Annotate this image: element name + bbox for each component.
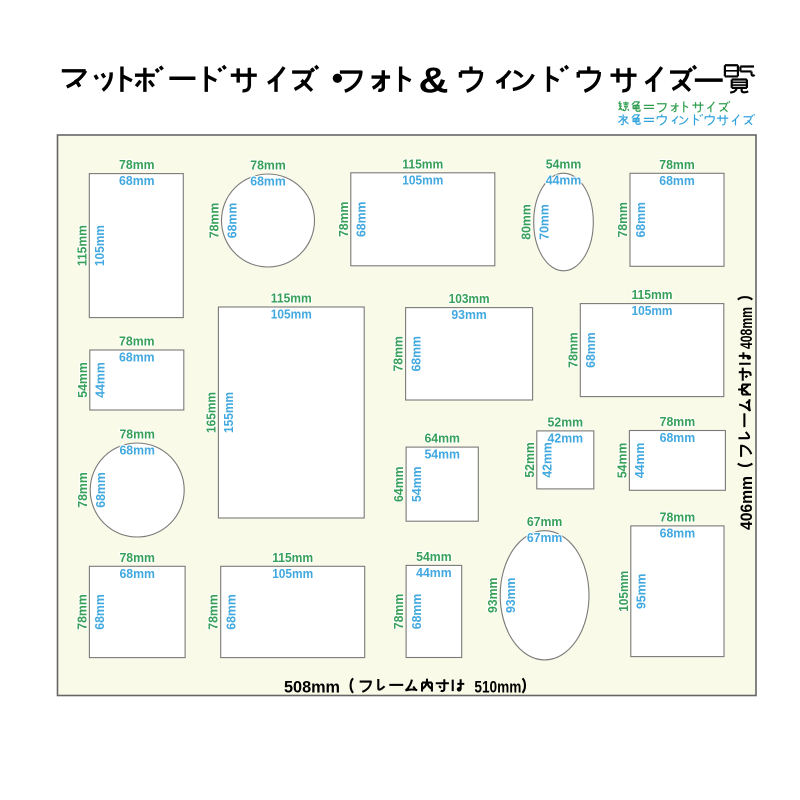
svg-text:105mm: 105mm <box>271 308 312 322</box>
svg-text:78mm: 78mm <box>119 158 155 172</box>
svg-text:68mm: 68mm <box>93 594 107 630</box>
svg-text:78mm: 78mm <box>119 335 155 349</box>
svg-text:93mm: 93mm <box>486 578 500 614</box>
svg-text:115mm: 115mm <box>75 225 89 266</box>
svg-text:408mm: 408mm <box>737 307 756 349</box>
svg-text:78mm: 78mm <box>207 594 221 630</box>
svg-text:93mm: 93mm <box>504 578 518 614</box>
svg-text:78mm: 78mm <box>660 415 696 429</box>
svg-text:103mm: 103mm <box>449 292 490 306</box>
svg-text:78mm: 78mm <box>659 158 695 172</box>
svg-text:80mm: 80mm <box>520 204 534 240</box>
svg-text:78mm: 78mm <box>337 202 351 238</box>
svg-text:115mm: 115mm <box>272 551 313 565</box>
svg-text:115mm: 115mm <box>402 157 443 171</box>
svg-text:105mm: 105mm <box>93 225 107 266</box>
svg-text:510mm: 510mm <box>474 678 521 697</box>
svg-text:68mm: 68mm <box>225 203 239 239</box>
svg-text:68mm: 68mm <box>584 332 598 368</box>
svg-text:68mm: 68mm <box>225 594 239 630</box>
svg-text:68mm: 68mm <box>119 174 155 188</box>
svg-text:78mm: 78mm <box>208 203 222 239</box>
svg-text:67mm: 67mm <box>527 531 563 545</box>
svg-text:68mm: 68mm <box>660 431 696 445</box>
svg-text:78mm: 78mm <box>392 594 406 630</box>
svg-text:64mm: 64mm <box>424 432 460 446</box>
svg-text:406mm: 406mm <box>737 476 756 530</box>
svg-text:68mm: 68mm <box>119 444 155 458</box>
svg-text:52mm: 52mm <box>548 415 584 429</box>
svg-text:93mm: 93mm <box>451 308 487 322</box>
svg-text:115mm: 115mm <box>632 288 673 302</box>
svg-text:78mm: 78mm <box>660 510 696 524</box>
svg-text:70mm: 70mm <box>538 204 552 240</box>
svg-text:68mm: 68mm <box>119 351 155 365</box>
svg-text:68mm: 68mm <box>119 567 155 581</box>
svg-text:68mm: 68mm <box>409 336 423 372</box>
svg-text:44mm: 44mm <box>633 443 647 479</box>
svg-text:44mm: 44mm <box>546 174 582 188</box>
svg-text:78mm: 78mm <box>616 202 630 238</box>
svg-text:54mm: 54mm <box>410 466 424 502</box>
svg-text:78mm: 78mm <box>566 332 580 368</box>
svg-text:68mm: 68mm <box>659 174 695 188</box>
svg-text:95mm: 95mm <box>635 574 649 610</box>
svg-text:105mm: 105mm <box>402 173 443 187</box>
svg-text:44mm: 44mm <box>94 362 108 398</box>
svg-text:78mm: 78mm <box>119 551 155 565</box>
svg-text:78mm: 78mm <box>250 159 286 173</box>
svg-text:68mm: 68mm <box>94 472 108 508</box>
svg-text:68mm: 68mm <box>250 175 286 189</box>
svg-text:165mm: 165mm <box>204 392 218 433</box>
svg-text:54mm: 54mm <box>76 362 90 398</box>
svg-text:68mm: 68mm <box>634 202 648 238</box>
svg-text:105mm: 105mm <box>632 304 673 318</box>
svg-text:68mm: 68mm <box>355 202 369 238</box>
svg-text:54mm: 54mm <box>424 448 460 462</box>
svg-text:68mm: 68mm <box>410 594 424 630</box>
svg-text:508mm: 508mm <box>284 678 340 697</box>
svg-text:155mm: 155mm <box>222 392 236 433</box>
svg-text:54mm: 54mm <box>615 443 629 479</box>
svg-text:105mm: 105mm <box>272 567 313 581</box>
svg-text:115mm: 115mm <box>271 292 312 306</box>
svg-text:44mm: 44mm <box>416 566 452 580</box>
svg-text:68mm: 68mm <box>660 526 696 540</box>
svg-text:42mm: 42mm <box>541 442 555 478</box>
svg-text:78mm: 78mm <box>392 336 406 372</box>
svg-text:105mm: 105mm <box>617 571 631 612</box>
svg-text:64mm: 64mm <box>392 466 406 502</box>
svg-text:78mm: 78mm <box>76 472 90 508</box>
svg-text:&: & <box>419 60 449 101</box>
svg-text:54mm: 54mm <box>546 158 582 172</box>
svg-text:78mm: 78mm <box>119 428 155 442</box>
svg-text:67mm: 67mm <box>527 515 563 529</box>
svg-text:52mm: 52mm <box>523 442 537 478</box>
svg-text:78mm: 78mm <box>75 594 89 630</box>
svg-text:54mm: 54mm <box>416 550 452 564</box>
